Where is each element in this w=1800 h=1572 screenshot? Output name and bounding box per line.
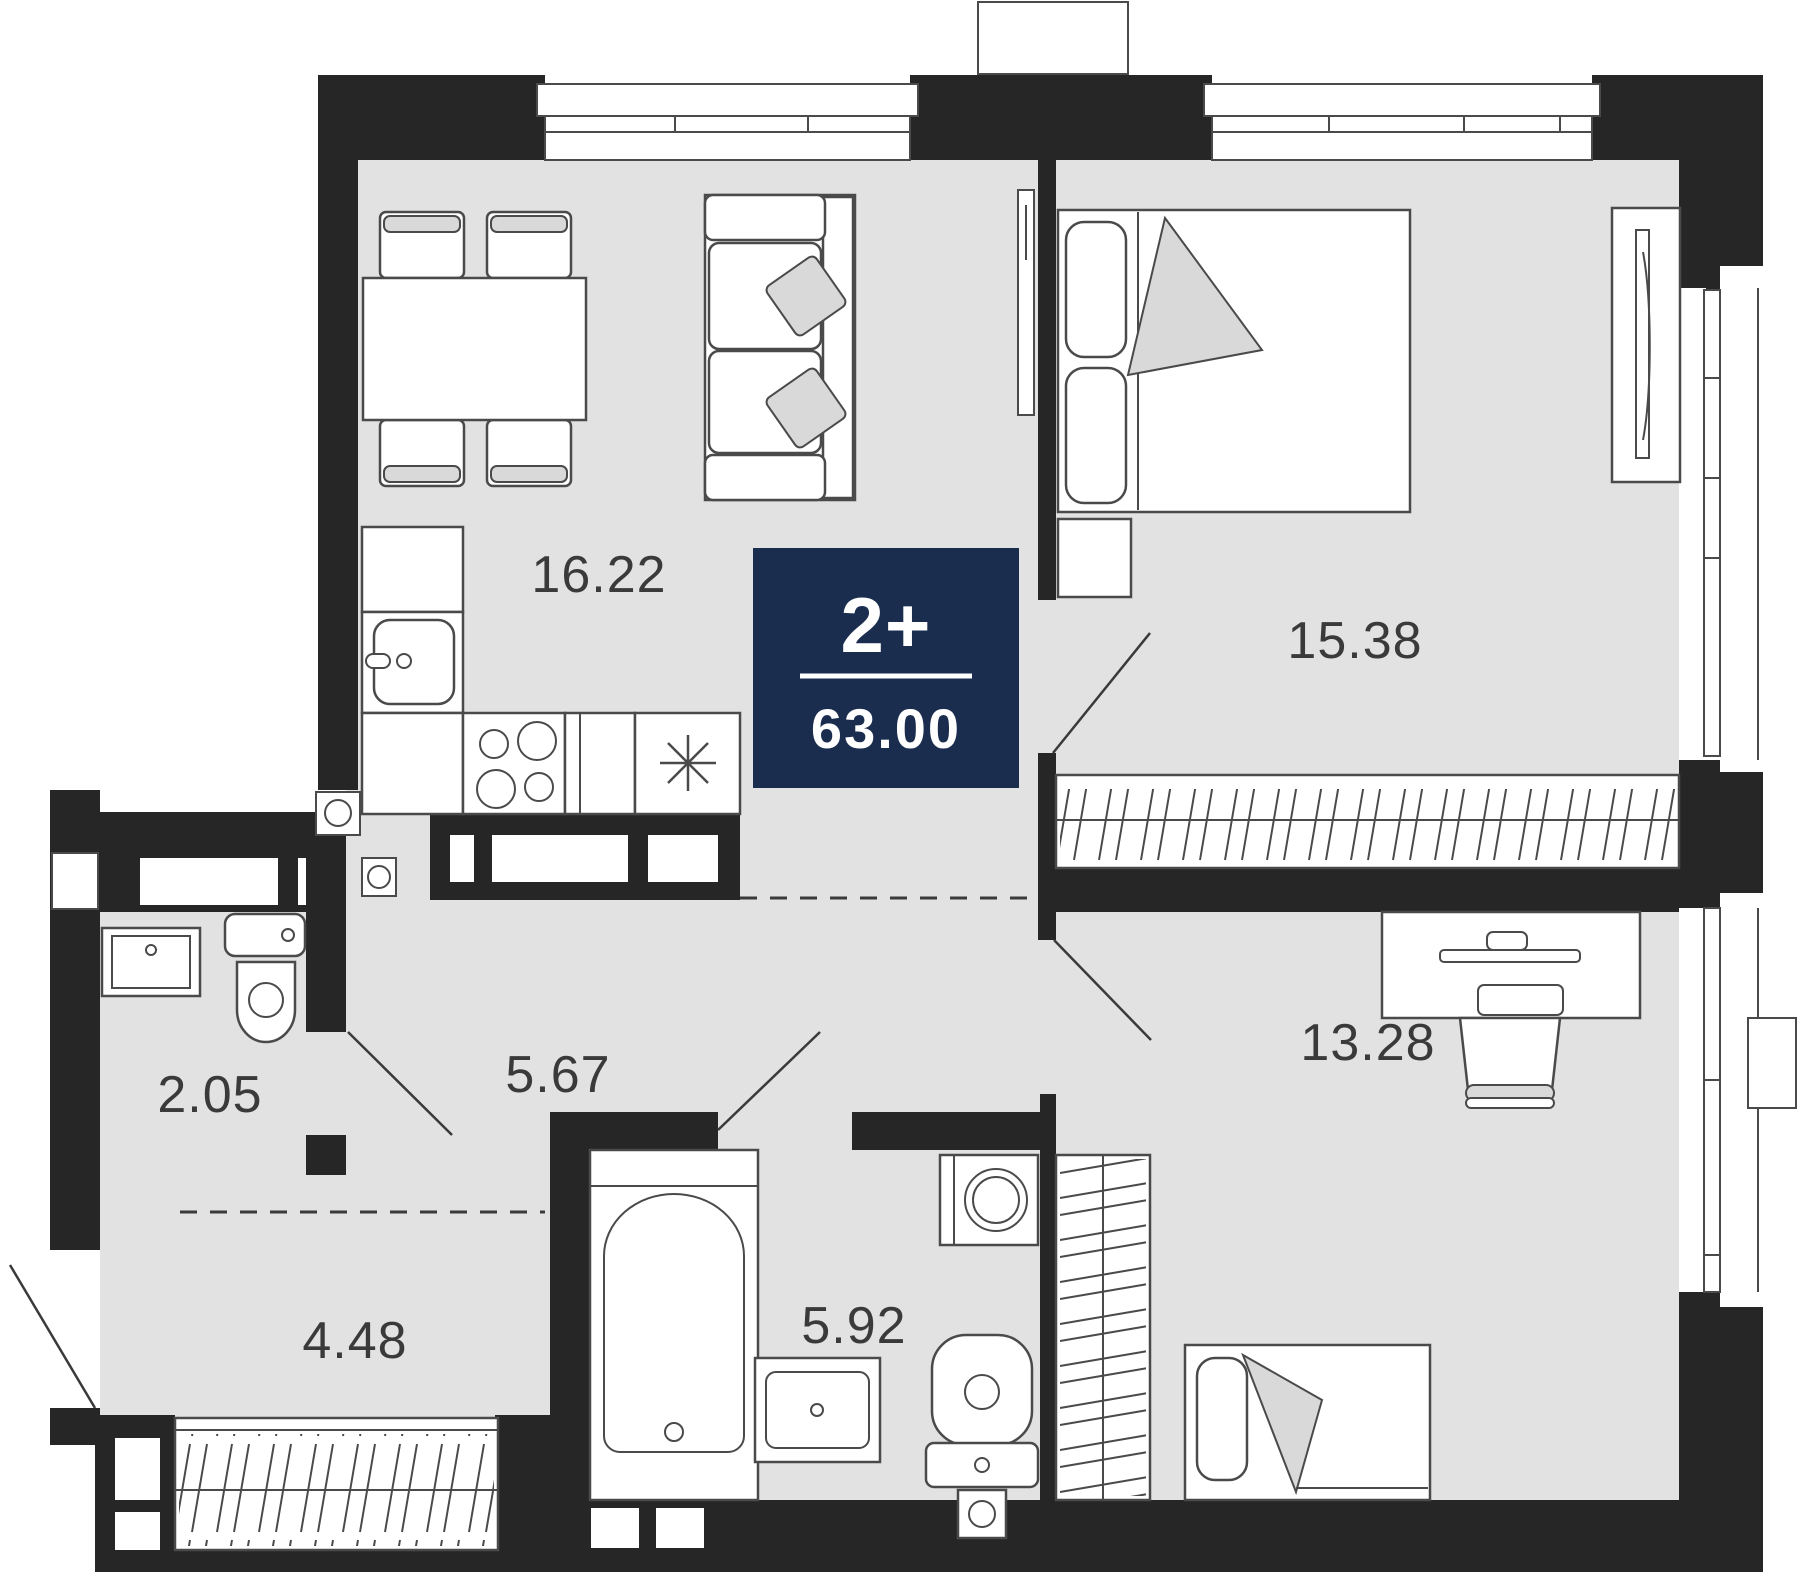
wardrobe-bedroom-2 (1056, 1155, 1150, 1500)
desk-chair (1460, 1018, 1560, 1108)
fridge-star-icon (660, 735, 716, 791)
pillow (1066, 222, 1126, 357)
kitchen-cabinet (362, 527, 463, 612)
bathtub (590, 1150, 758, 1500)
balcony-bottom (1679, 893, 1800, 1307)
area-badge: 2+ 63.00 (753, 548, 1019, 788)
balcony-top (1679, 266, 1800, 772)
badge-rooms-label: 2+ (841, 581, 932, 669)
utility-box (362, 858, 396, 896)
washbasin (755, 1358, 880, 1462)
keyboard (1478, 985, 1563, 1015)
area-label-wc: 2.05 (157, 1066, 262, 1124)
window-kitchen (537, 84, 918, 160)
nightstand (1058, 519, 1131, 597)
floor-plan-svg: 16.22 15.38 5.67 2.05 4.48 5.92 13.28 2+… (0, 0, 1800, 1572)
ventilation-shaft (978, 2, 1128, 74)
monitor (1440, 950, 1580, 962)
double-bed (1058, 210, 1410, 512)
sofa (705, 195, 855, 500)
mirror-wardrobe (1612, 208, 1680, 482)
area-label-hallway: 5.67 (505, 1046, 610, 1104)
single-bed (1185, 1345, 1430, 1500)
desk (1382, 912, 1640, 1018)
pillow (1197, 1358, 1247, 1480)
window-bedroom (1204, 84, 1600, 160)
utility-box (316, 792, 360, 835)
wardrobe-bedroom (1056, 775, 1679, 868)
floor-plan-page: 16.22 15.38 5.67 2.05 4.48 5.92 13.28 2+… (0, 0, 1800, 1572)
area-label-bedroom: 15.38 (1287, 612, 1422, 670)
area-label-entry: 4.48 (302, 1312, 407, 1370)
faucet (397, 654, 411, 668)
wardrobe-entry (175, 1418, 498, 1550)
area-label-living-kitchen: 16.22 (531, 546, 666, 604)
wc-window (52, 853, 98, 909)
area-label-bathroom: 5.92 (801, 1297, 906, 1355)
badge-total-area: 63.00 (811, 697, 961, 760)
dining-table (363, 278, 586, 420)
washing-machine (940, 1155, 1038, 1245)
pillow (1066, 368, 1126, 503)
wc-washbasin (102, 928, 200, 996)
area-label-bedroom-2: 13.28 (1300, 1014, 1435, 1072)
